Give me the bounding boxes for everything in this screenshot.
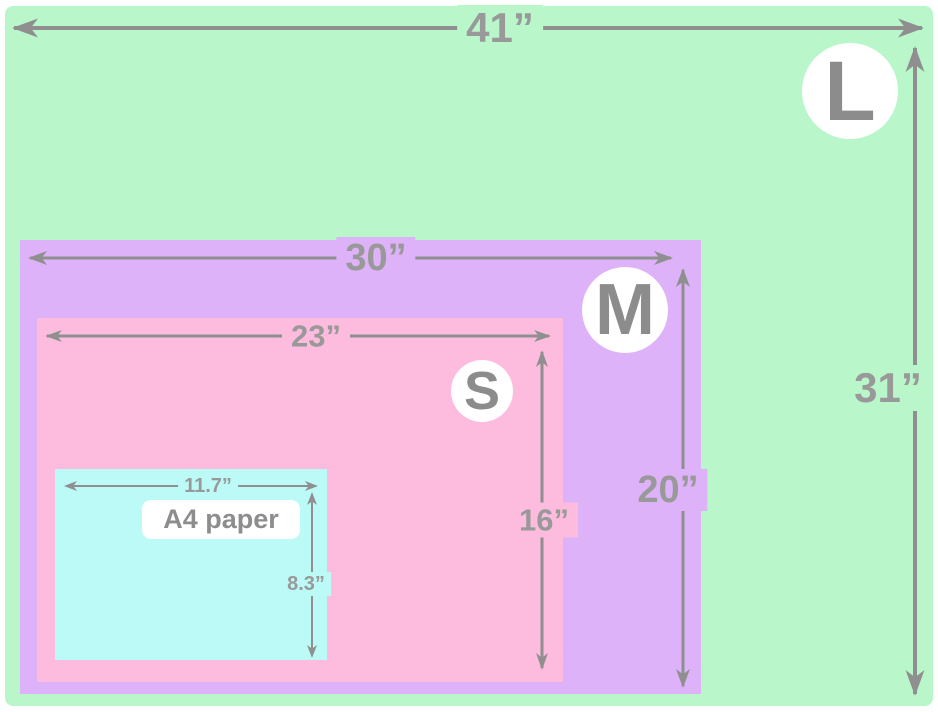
dimension-label-l-width: 41” (457, 5, 543, 51)
dimension-label-m-width: 30” (336, 237, 415, 279)
dimension-arrow-s-height: 16” (532, 350, 552, 670)
dimension-label-m-height: 20” (628, 469, 707, 511)
size-m-badge: M (582, 267, 668, 353)
dimension-arrow-m-width: 30” (28, 248, 673, 268)
size-comparison-diagram: L M S A4 paper 41” 31” 30” 20” (0, 0, 938, 712)
size-l-letter: L (824, 49, 875, 133)
a4-paper-label: A4 paper (142, 500, 300, 539)
dimension-label-a4-height: 8.3” (281, 572, 331, 596)
dimension-label-a4-width: 11.7” (178, 474, 238, 498)
dimension-arrow-m-height: 20” (673, 268, 693, 688)
dimension-label-s-height: 16” (510, 503, 578, 538)
dimension-arrow-s-width: 23” (45, 326, 551, 346)
dimension-arrow-l-width: 41” (12, 18, 924, 38)
size-m-letter: M (595, 274, 655, 346)
a4-paper-label-text: A4 paper (163, 506, 279, 533)
dimension-arrow-l-height: 31” (905, 46, 925, 696)
dimension-arrow-a4-height: 8.3” (304, 492, 320, 658)
size-s-letter: S (464, 364, 500, 418)
dimension-label-l-height: 31” (845, 365, 931, 411)
size-l-badge: L (802, 43, 898, 139)
dimension-arrow-a4-width: 11.7” (64, 478, 318, 494)
dimension-label-s-width: 23” (282, 319, 350, 354)
size-s-badge: S (451, 360, 513, 422)
